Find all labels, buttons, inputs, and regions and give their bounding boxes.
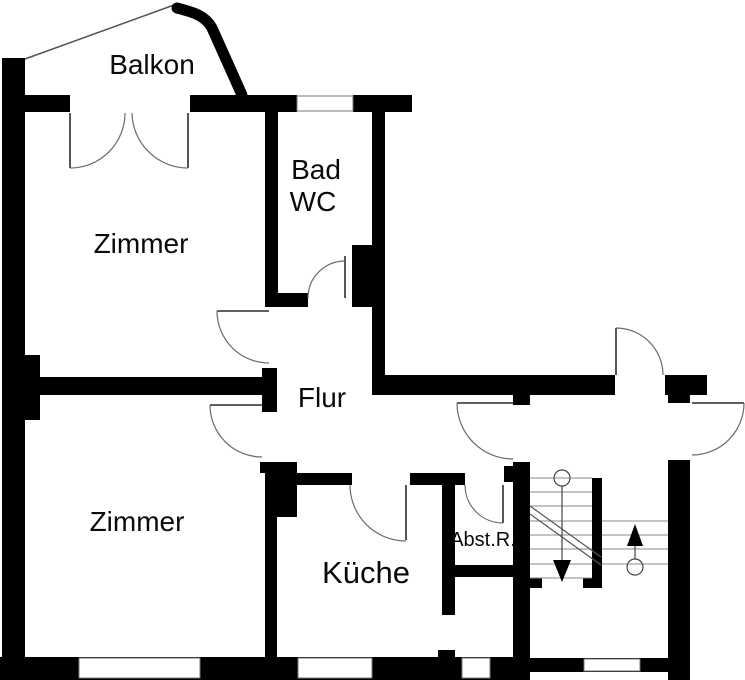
wall-kueche-top-left	[277, 473, 352, 485]
wall-stair-nib-mid	[583, 578, 602, 588]
abst-door-swing	[465, 485, 503, 523]
doors	[70, 113, 744, 541]
wall-flur-top	[372, 375, 615, 395]
room-label-zimmer-lower: Zimmer	[90, 506, 185, 537]
floorplan-drawing: Balkon Bad WC Zimmer Flur Zimmer Küche A…	[0, 0, 745, 680]
room-label-balkon: Balkon	[109, 49, 195, 80]
window-kueche	[298, 658, 372, 678]
wall-entry-stub	[668, 395, 690, 403]
wall-middle	[25, 377, 277, 395]
zimmer-upper-door-swing	[217, 311, 269, 363]
wall-middle-end	[262, 368, 277, 412]
balcony-door-right-swing	[132, 113, 188, 168]
window-zimmer-lower	[79, 658, 200, 678]
wall-bad-left	[265, 112, 278, 293]
wall-kueche-right-foot	[438, 650, 455, 658]
balcony-door-left-swing	[70, 113, 125, 168]
entrance-door-swing	[616, 328, 663, 375]
wall-flur-door-stub	[513, 395, 530, 405]
bad-door-swing	[308, 261, 345, 298]
floorplan: Balkon Bad WC Zimmer Flur Zimmer Küche A…	[0, 0, 745, 680]
wall-left-outer	[2, 58, 25, 680]
room-label-kueche: Küche	[322, 555, 410, 590]
window-stairwell	[584, 659, 640, 671]
flur-landing-door-swing	[457, 403, 513, 459]
wall-entry-right	[665, 375, 707, 395]
room-label-zimmer-upper: Zimmer	[94, 228, 189, 259]
stair-arrow-down-icon	[553, 560, 571, 582]
room-label-flur: Flur	[298, 382, 346, 413]
stair-walkline-down	[553, 470, 571, 582]
window-bad	[297, 96, 353, 111]
wall-kueche-pier	[277, 485, 297, 517]
room-label-bad: Bad	[291, 154, 341, 185]
stair-walkline-end-circle	[627, 559, 643, 575]
wall-stair-left	[513, 462, 530, 680]
kueche-door-swing	[350, 485, 406, 541]
window-pantry	[462, 658, 490, 678]
wall-top-a	[25, 95, 70, 112]
wall-right-upper	[372, 95, 385, 378]
wall-stair-nib-left	[530, 578, 542, 588]
room-label-abstellraum: Abst.R.	[450, 529, 516, 551]
wall-bad-bottom	[265, 293, 308, 307]
wall-abst-bottom	[452, 565, 515, 577]
zimmer-lower-door-swing	[210, 405, 262, 457]
wall-stair-stringer	[592, 478, 602, 578]
wall-stair-right	[668, 460, 690, 680]
wall-zimmer2-right	[265, 462, 277, 658]
room-label-wc: WC	[290, 186, 337, 217]
wall-kueche-top-right	[410, 473, 465, 485]
landing-right-door-swing	[692, 403, 744, 455]
wall-bad-shaft	[352, 245, 372, 307]
